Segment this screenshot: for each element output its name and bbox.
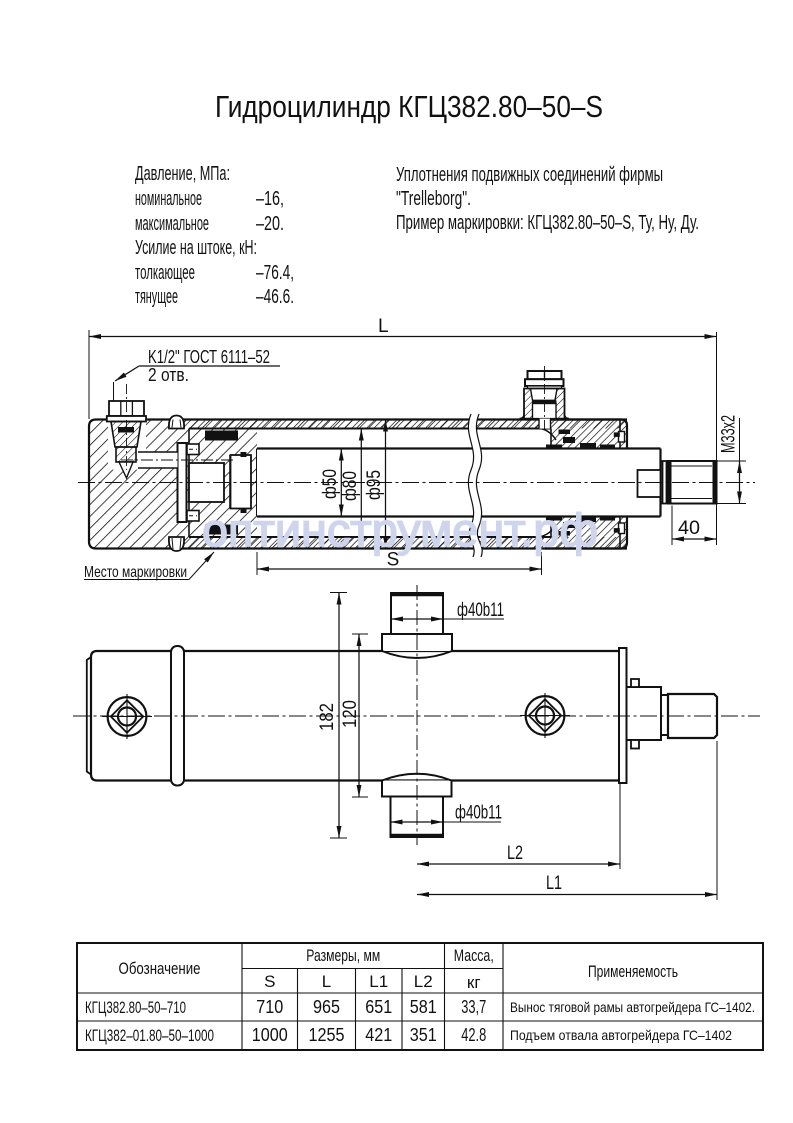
svg-text:42.8: 42.8 xyxy=(461,1025,486,1045)
svg-text:40: 40 xyxy=(678,518,700,539)
svg-text:965: 965 xyxy=(313,997,340,1017)
svg-text:кг: кг xyxy=(467,973,481,992)
svg-text:421: 421 xyxy=(365,1025,392,1045)
svg-text:351: 351 xyxy=(410,1025,437,1045)
svg-text:толкающее: толкающее xyxy=(135,262,195,284)
svg-text:1000: 1000 xyxy=(252,1025,288,1045)
svg-text:Место маркировки: Место маркировки xyxy=(84,564,187,581)
svg-text:2 отв.: 2 отв. xyxy=(148,365,189,385)
svg-text:L1: L1 xyxy=(369,972,388,991)
svg-text:1255: 1255 xyxy=(309,1025,345,1045)
svg-text:Вынос тяговой рамы автогрейдер: Вынос тяговой рамы автогрейдера ГС–1402. xyxy=(510,999,755,1015)
svg-text:L2: L2 xyxy=(414,972,433,991)
svg-text:581: 581 xyxy=(410,997,437,1017)
svg-text:Гидроцилиндр КГЦ382.80–50–S: Гидроцилиндр КГЦ382.80–50–S xyxy=(215,89,603,124)
svg-text:33,7: 33,7 xyxy=(461,997,486,1017)
svg-text:Подъем отвала автогрейдера ГС–: Подъем отвала автогрейдера ГС–1402 xyxy=(510,1027,732,1043)
svg-text:120: 120 xyxy=(340,700,361,728)
svg-text:оптинструмент.рф: оптинструмент.рф xyxy=(202,504,598,556)
svg-text:L2: L2 xyxy=(507,843,523,864)
svg-text:L: L xyxy=(378,316,389,337)
svg-text:ф95: ф95 xyxy=(364,470,385,500)
svg-text:КГЦ382.80–50–710: КГЦ382.80–50–710 xyxy=(85,998,186,1017)
svg-text:L: L xyxy=(322,972,331,991)
svg-text:Давление, МПа:: Давление, МПа: xyxy=(135,163,230,185)
svg-text:максимальное: максимальное xyxy=(135,213,209,235)
svg-text:–20.: –20. xyxy=(256,213,284,235)
svg-text:651: 651 xyxy=(365,997,392,1017)
svg-text:710: 710 xyxy=(256,997,283,1017)
svg-text:ф80: ф80 xyxy=(340,471,361,501)
svg-text:КГЦ382–01.80–50–1000: КГЦ382–01.80–50–1000 xyxy=(85,1026,214,1045)
svg-text:ф40b11: ф40b11 xyxy=(457,600,504,621)
svg-text:L1: L1 xyxy=(546,873,562,894)
svg-text:Уплотнения подвижных соединени: Уплотнения подвижных соединений фирмы xyxy=(396,164,663,186)
svg-text:"Trelleborg".: "Trelleborg". xyxy=(396,188,471,210)
svg-text:–16,: –16, xyxy=(256,188,284,210)
svg-text:Пример маркировки: КГЦ382.80–5: Пример маркировки: КГЦ382.80–50–S, Ту, Н… xyxy=(396,212,699,234)
svg-text:–46.6.: –46.6. xyxy=(256,286,294,308)
svg-text:ф50: ф50 xyxy=(320,469,341,499)
svg-text:Усилие на штоке, кН:: Усилие на штоке, кН: xyxy=(135,237,257,259)
svg-text:номинальное: номинальное xyxy=(135,188,202,210)
svg-text:K1/2" ГОСТ 6111–52: K1/2" ГОСТ 6111–52 xyxy=(148,347,270,367)
svg-text:Размеры, мм: Размеры, мм xyxy=(306,946,380,965)
svg-text:Применяемость: Применяемость xyxy=(588,962,678,981)
svg-text:–76.4,: –76.4, xyxy=(256,262,294,284)
svg-text:Масса,: Масса, xyxy=(454,946,494,965)
svg-text:ф40b11: ф40b11 xyxy=(455,803,502,824)
svg-text:182: 182 xyxy=(317,703,338,731)
svg-text:тянущее: тянущее xyxy=(135,286,178,308)
svg-text:Обозначение: Обозначение xyxy=(119,959,201,978)
svg-text:S: S xyxy=(264,972,275,991)
svg-text:М33х2: М33х2 xyxy=(719,415,740,453)
